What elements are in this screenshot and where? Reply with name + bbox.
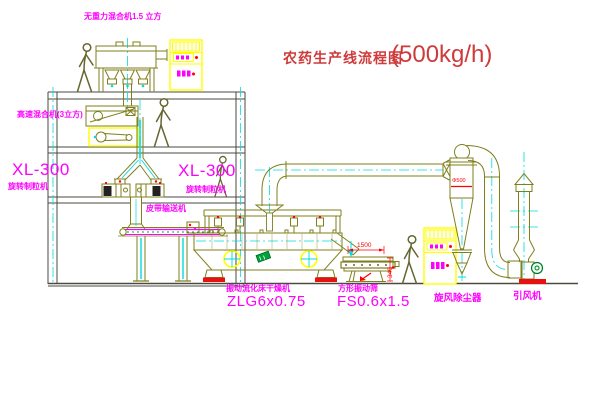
- label-granulator-left-model: XL-300: [12, 161, 70, 178]
- label-granulator-right-model: XL-300: [178, 162, 236, 179]
- label-granulator-left-name: 旋转制粒机: [8, 183, 48, 191]
- dimension-screen-height: 340: [388, 267, 395, 278]
- fluid-bed-dryer: [187, 210, 359, 282]
- belt-conveyor: [118, 228, 228, 282]
- person-roof: [78, 44, 94, 92]
- person-ground: [403, 236, 419, 284]
- dimension-cyclone-diameter: Φ500: [452, 179, 466, 185]
- label-fan: 引风机: [513, 292, 542, 302]
- gravity-free-mixer: [94, 42, 167, 106]
- label-granulator-right-name: 旋转制粒机: [186, 186, 226, 194]
- discharge-chute: [127, 197, 145, 229]
- label-screen-name: 方形振动筛: [338, 285, 378, 293]
- nameplate-badge: [256, 251, 271, 262]
- control-cabinet-top: [170, 40, 202, 90]
- label-belt-conveyor: 皮带输送机: [146, 205, 186, 213]
- label-dryer-name: 振动流化床干燥机: [226, 285, 290, 293]
- diagram-title-capacity: (500kg/h): [391, 43, 492, 67]
- control-cabinet-right: [424, 228, 456, 284]
- label-gravity-mixer: 无重力混合机1.5 立方: [84, 13, 161, 21]
- dimension-screen-length: 1500: [357, 243, 371, 250]
- granulator-left: [102, 179, 130, 197]
- induced-draft-fan: [508, 261, 546, 284]
- granulator-right: [136, 179, 164, 197]
- person-level2: [155, 99, 171, 147]
- high-speed-mixer: [86, 106, 143, 158]
- label-cyclone: 旋风除尘器: [434, 294, 482, 304]
- label-screen-model: FS0.6x1.5: [337, 294, 410, 309]
- label-high-speed-mixer: 高速混合机(3立方): [17, 111, 83, 119]
- y-chute: [114, 158, 162, 180]
- diagram-title: 农药生产线流程图: [283, 51, 403, 65]
- feed-duct: [256, 161, 443, 231]
- cad-flow-diagram: 农药生产线流程图 (500kg/h) 无重力混合机1.5 立方 高速混合机(3立…: [0, 0, 600, 403]
- label-dryer-model: ZLG6x0.75: [227, 294, 306, 309]
